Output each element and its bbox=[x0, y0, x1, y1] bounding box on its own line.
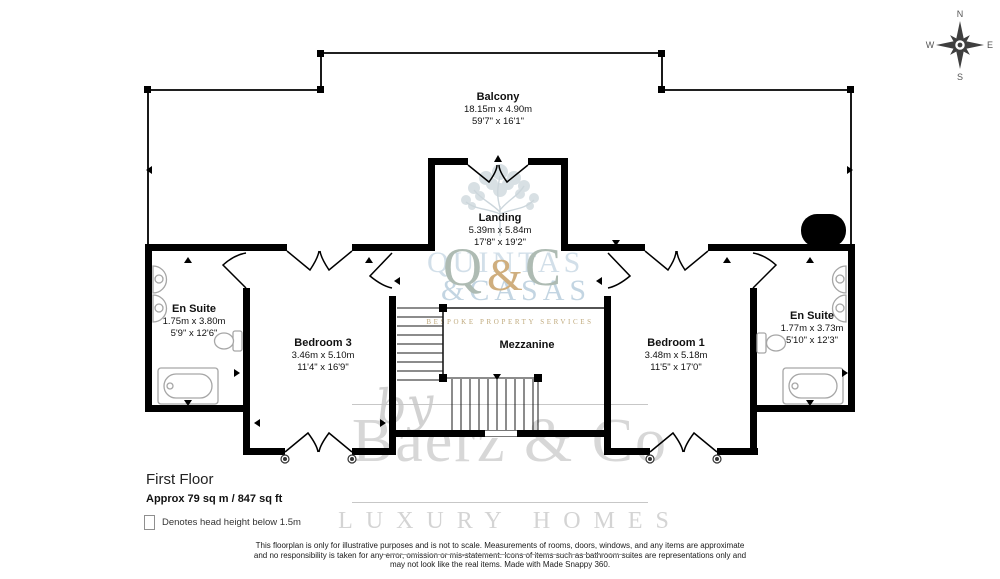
room-dim-imperial: 11'5" x 17'0" bbox=[606, 362, 746, 375]
window-strip bbox=[485, 429, 517, 438]
room-name: Mezzanine bbox=[457, 339, 597, 352]
room-name: Bedroom 3 bbox=[253, 337, 393, 350]
legend: Denotes head height below 1.5m bbox=[144, 515, 301, 530]
disclaimer-line1: This floorplan is only for illustrative … bbox=[0, 541, 1000, 551]
room-label-mezzanine: Mezzanine bbox=[457, 339, 597, 352]
ensuite-right-door bbox=[753, 253, 776, 288]
watermark-underline bbox=[383, 554, 630, 555]
room-name: Bedroom 1 bbox=[606, 337, 746, 350]
room-name: En Suite bbox=[752, 310, 872, 323]
french-doors bbox=[281, 165, 721, 463]
room-name: Balcony bbox=[428, 91, 568, 104]
compass-west-label: W bbox=[926, 40, 935, 50]
room-label-bedroom1: Bedroom 1 3.48m x 5.18m 11'5" x 17'0" bbox=[606, 337, 746, 375]
ensuite-left-door bbox=[223, 253, 246, 288]
room-dim-imperial: 5'10" x 12'3" bbox=[752, 335, 872, 348]
room-dim-metric: 3.46m x 5.10m bbox=[253, 350, 393, 363]
bedroom3-door bbox=[370, 253, 392, 288]
room-dim-metric: 1.77m x 3.73m bbox=[752, 323, 872, 336]
room-label-bedroom3: Bedroom 3 3.46m x 5.10m 11'4" x 16'9" bbox=[253, 337, 393, 375]
room-dim-metric: 1.75m x 3.80m bbox=[134, 316, 254, 329]
bedroom1-door bbox=[608, 253, 630, 288]
doors bbox=[223, 253, 776, 288]
direction-markers bbox=[146, 155, 853, 427]
room-label-ensuite-left: En Suite 1.75m x 3.80m 5'9" x 12'6" bbox=[134, 303, 254, 341]
room-dim-imperial: 59'7" x 16'1" bbox=[428, 116, 568, 129]
floor-area: Approx 79 sq m / 847 sq ft bbox=[146, 493, 282, 505]
room-dim-metric: 18.15m x 4.90m bbox=[428, 104, 568, 117]
head-height-icon bbox=[144, 515, 155, 530]
disclaimer-line2: and no responsibility is taken for any e… bbox=[0, 551, 1000, 561]
floorplan-page: by Baerz & Co LUXURY HOMES QUINTAS &CASA… bbox=[0, 0, 1000, 579]
stairs bbox=[397, 308, 538, 430]
compass-north-label: N bbox=[957, 9, 964, 19]
compass-icon: N E S W bbox=[923, 6, 997, 84]
legend-label: Denotes head height below 1.5m bbox=[162, 517, 301, 528]
room-label-ensuite-right: En Suite 1.77m x 3.73m 5'10" x 12'3" bbox=[752, 310, 872, 348]
room-name: Landing bbox=[430, 212, 570, 225]
room-label-landing: Landing 5.39m x 5.84m 17'8" x 19'2" bbox=[430, 212, 570, 250]
compass-east-label: E bbox=[987, 40, 993, 50]
bathtub-icon bbox=[783, 368, 843, 404]
disclaimer-line3: may not look like the real items. Made w… bbox=[0, 560, 1000, 570]
hot-tub bbox=[801, 214, 846, 247]
room-label-balcony: Balcony 18.15m x 4.90m 59'7" x 16'1" bbox=[428, 91, 568, 129]
bathtub-icon bbox=[158, 368, 218, 404]
room-dim-imperial: 17'8" x 19'2" bbox=[430, 237, 570, 250]
room-dim-metric: 5.39m x 5.84m bbox=[430, 225, 570, 238]
floor-title: First Floor bbox=[146, 471, 214, 488]
disclaimer: This floorplan is only for illustrative … bbox=[0, 541, 1000, 570]
compass-south-label: S bbox=[957, 72, 963, 82]
room-dim-metric: 3.48m x 5.18m bbox=[606, 350, 746, 363]
room-dim-imperial: 5'9" x 12'6" bbox=[134, 328, 254, 341]
room-dim-imperial: 11'4" x 16'9" bbox=[253, 362, 393, 375]
room-name: En Suite bbox=[134, 303, 254, 316]
